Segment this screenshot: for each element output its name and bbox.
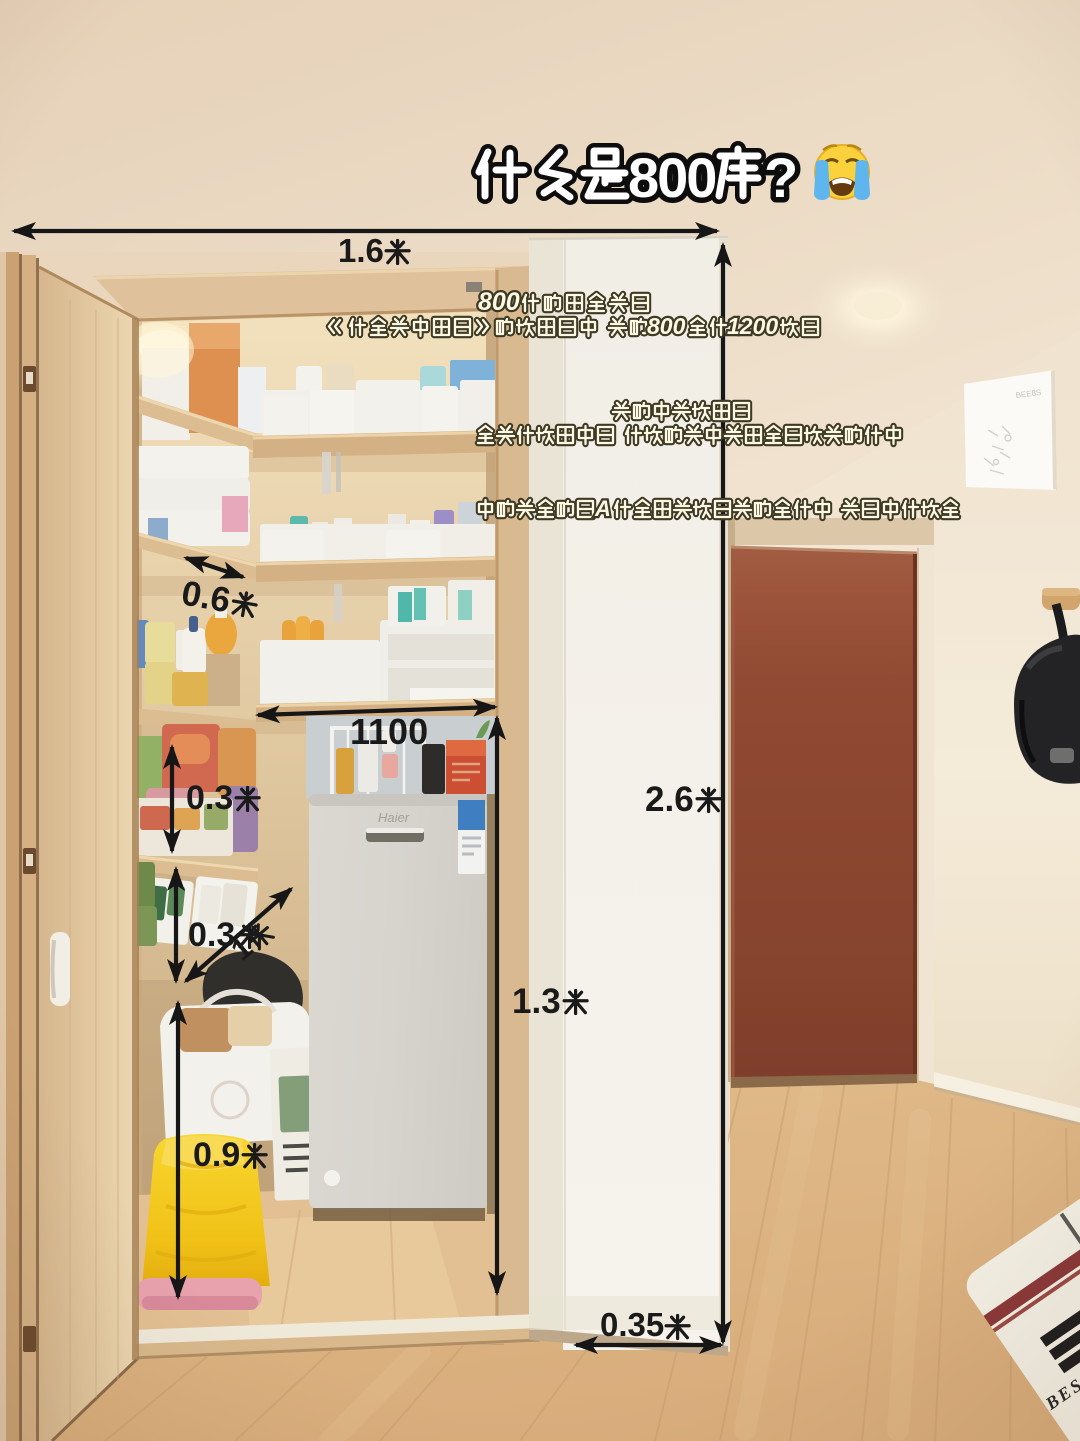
svg-text:A: A (594, 496, 611, 521)
svg-text:0.6: 0.6 (179, 573, 234, 620)
svg-text:0.35: 0.35 (600, 1306, 664, 1343)
svg-text:0.3: 0.3 (188, 916, 235, 954)
svg-text:1200: 1200 (727, 313, 778, 339)
svg-text:800: 800 (647, 313, 686, 339)
svg-text:2.6: 2.6 (645, 780, 694, 819)
svg-text:1.3: 1.3 (512, 982, 561, 1021)
svg-text:0.9: 0.9 (193, 1136, 240, 1174)
svg-text:800: 800 (628, 146, 715, 209)
svg-text:1100: 1100 (350, 711, 428, 752)
svg-text:1.6: 1.6 (338, 232, 384, 269)
svg-text:?: ? (764, 146, 798, 209)
svg-text:0.3: 0.3 (186, 779, 233, 817)
svg-text:800: 800 (478, 288, 520, 316)
